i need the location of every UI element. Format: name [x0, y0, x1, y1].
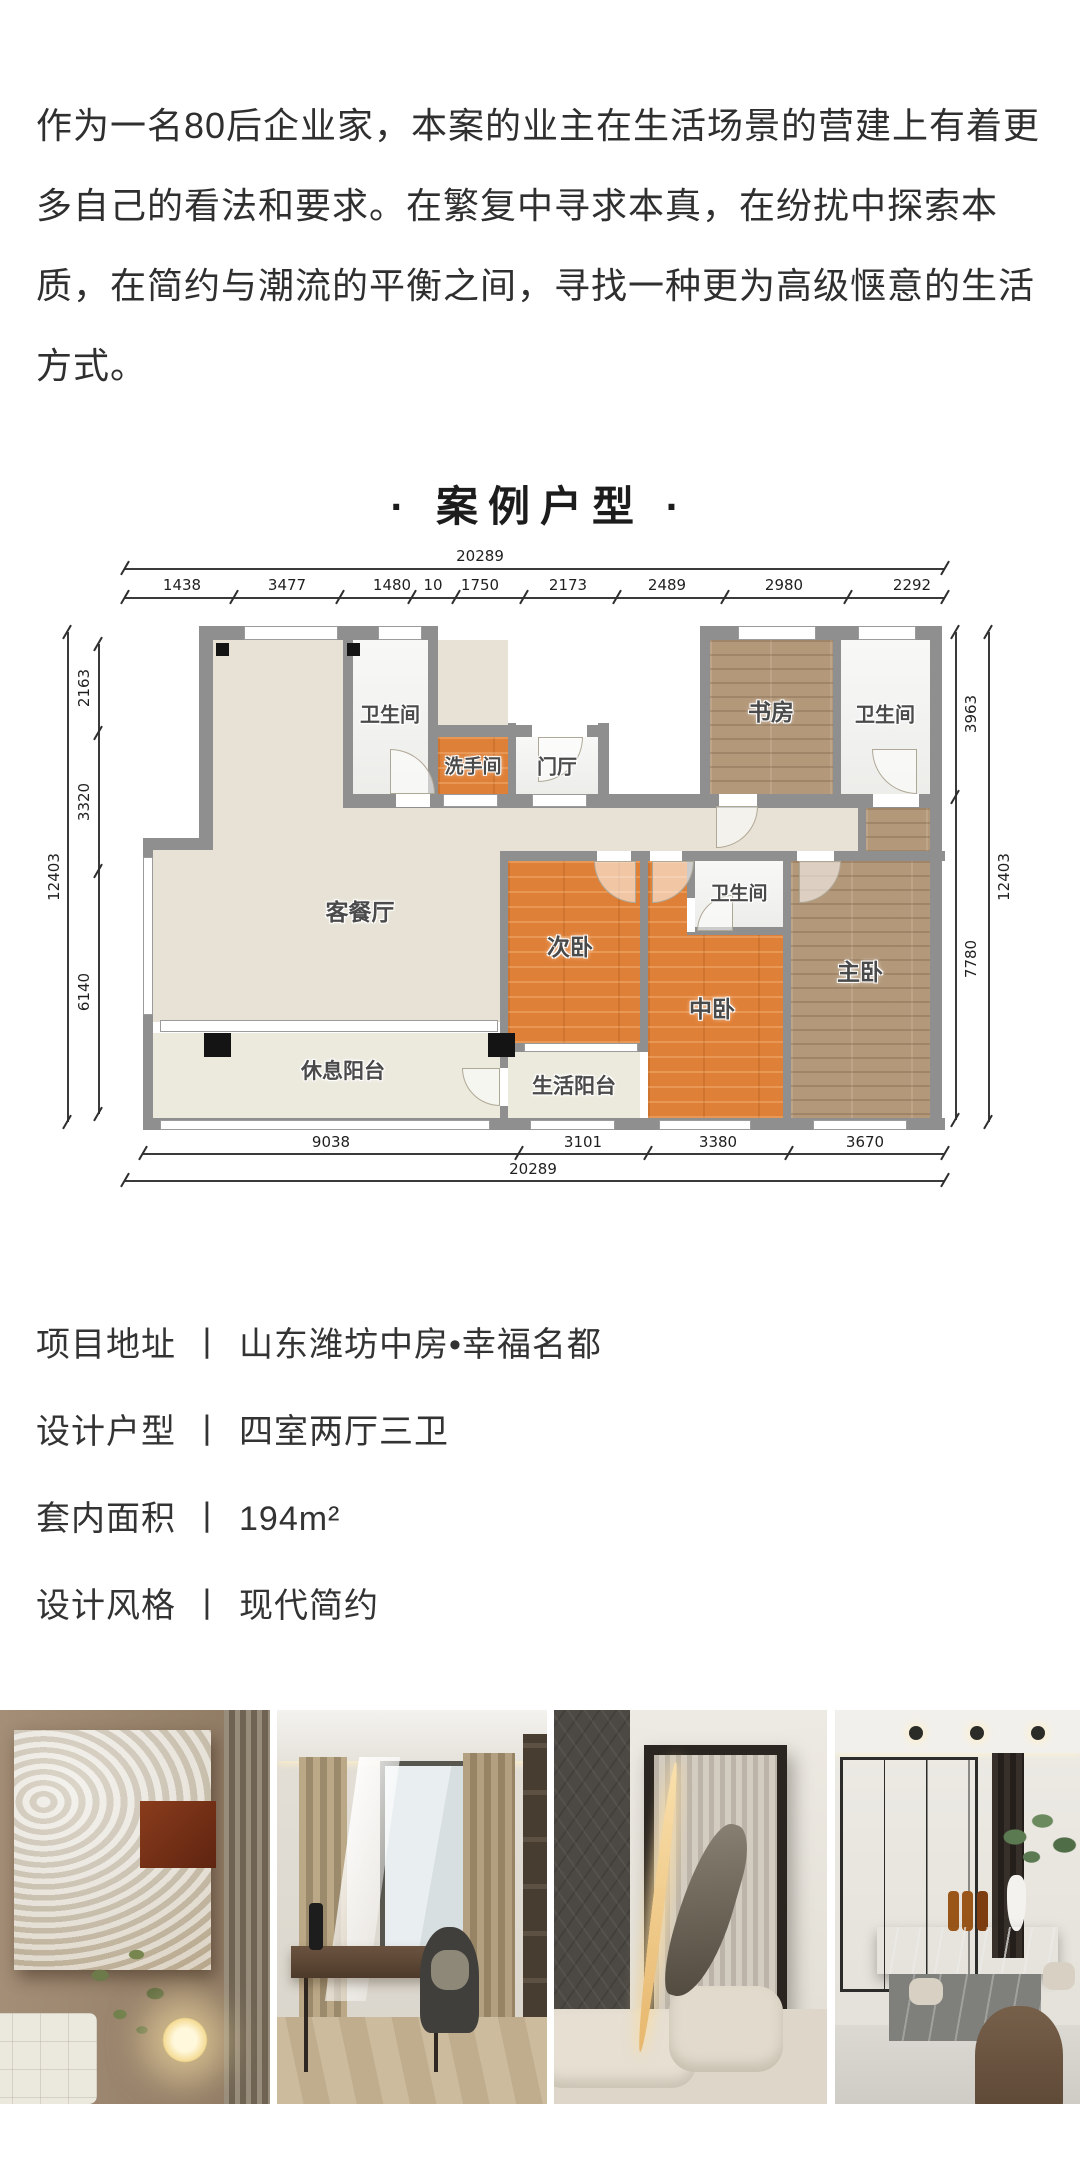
dimension-label: 2173 — [549, 576, 587, 594]
window — [738, 626, 816, 640]
info-separator: 丨 — [190, 1326, 225, 1364]
room-label: 卫生间 — [710, 879, 767, 906]
photo-living-room-artwork — [554, 1710, 827, 2104]
intro-paragraph: 作为一名80后企业家，本案的业主在生活场景的营建上有着更多自己的看法和要求。在繁… — [36, 86, 1046, 406]
dimension-label: 20289 — [509, 1160, 557, 1178]
dining-chair — [975, 2006, 1063, 2105]
structural-column — [488, 1033, 515, 1057]
room-master-bedroom-upper — [866, 808, 930, 857]
info-label: 项目地址 — [36, 1326, 176, 1364]
window — [160, 1120, 490, 1130]
dimension-label: 9038 — [312, 1133, 350, 1151]
door-opening — [873, 794, 919, 807]
spotlight — [1031, 1726, 1045, 1740]
window — [378, 626, 422, 640]
dimension-line — [143, 1153, 945, 1155]
info-value: 194m² — [239, 1500, 340, 1538]
dimension-label: 3320 — [75, 783, 93, 821]
floor-plan: 客餐厅卫生间洗手间门厅书房卫生间卫生间次卧中卧主卧生活阳台休息阳台2028914… — [60, 555, 1000, 1210]
dimension-label: 1480 — [373, 576, 411, 594]
marble-bar-counter — [877, 1927, 1058, 1974]
door-opening — [797, 851, 834, 861]
curtain — [224, 1710, 270, 2104]
desk-leg — [304, 1978, 308, 2073]
wall — [343, 794, 940, 808]
article-page: 作为一名80后企业家，本案的业主在生活场景的营建上有着更多自己的看法和要求。在繁… — [0, 0, 1080, 2168]
room-label: 主卧 — [837, 953, 883, 987]
room-label: 书房 — [748, 693, 794, 727]
window — [530, 1120, 615, 1130]
door-opening — [687, 898, 695, 932]
info-separator: 丨 — [190, 1413, 225, 1451]
bottle — [948, 1891, 959, 1930]
info-row-area: 套内面积丨194m² — [36, 1494, 602, 1544]
room-label: 卫生间 — [360, 699, 420, 728]
info-row-layout: 设计户型丨四室两厅三卫 — [36, 1407, 602, 1457]
project-info: 项目地址丨山东潍坊中房•幸福名都 设计户型丨四室两厅三卫 套内面积丨194m² … — [36, 1320, 602, 1668]
info-separator: 丨 — [190, 1500, 225, 1538]
room-label: 休息阳台 — [301, 1055, 385, 1085]
window — [143, 857, 153, 1015]
dimension-label: 6140 — [75, 973, 93, 1011]
wall — [858, 795, 866, 857]
info-separator: 丨 — [190, 1587, 225, 1625]
info-value: 四室两厅三卫 — [239, 1413, 449, 1451]
dimension-label: 3101 — [564, 1133, 602, 1151]
door-opening — [532, 725, 587, 737]
room-corridor — [508, 808, 858, 851]
photo-bedroom-artwork — [0, 1710, 270, 2104]
info-row-address: 项目地址丨山东潍坊中房•幸福名都 — [36, 1320, 602, 1370]
window — [813, 1120, 907, 1130]
room-label: 卫生间 — [855, 699, 915, 728]
window — [659, 1120, 751, 1130]
wall — [833, 626, 841, 808]
bottle — [962, 1891, 973, 1930]
door-opening — [396, 794, 430, 807]
room-label: 生活阳台 — [532, 1070, 616, 1100]
wall — [508, 723, 516, 806]
info-value: 现代简约 — [239, 1587, 379, 1625]
dimension-label: 2292 — [893, 576, 931, 594]
room-label: 客餐厅 — [326, 893, 395, 927]
section-title: · 案例户型 · — [0, 473, 1080, 534]
room-label: 中卧 — [689, 990, 735, 1024]
info-label: 设计户型 — [36, 1413, 176, 1451]
wall — [598, 723, 609, 808]
door-opening — [500, 1068, 508, 1106]
photo-gallery — [0, 1710, 1080, 2104]
bar-stool — [909, 1978, 943, 2006]
dimension-line — [125, 597, 945, 599]
structural-column — [347, 643, 360, 656]
spotlight — [970, 1726, 984, 1740]
window — [244, 626, 338, 640]
room-label: 门厅 — [537, 751, 577, 780]
structural-column — [216, 643, 229, 656]
info-row-style: 设计风格丨现代简约 — [36, 1581, 602, 1631]
dimension-label: 12403 — [45, 853, 63, 901]
wall — [199, 626, 213, 850]
window — [160, 1020, 498, 1032]
spotlight — [909, 1726, 923, 1740]
globe-lamp — [162, 2017, 208, 2063]
dimension-label: 1750 — [461, 576, 499, 594]
info-value: 山东潍坊中房•幸福名都 — [239, 1326, 602, 1364]
wall — [783, 851, 791, 1130]
bottle — [977, 1891, 988, 1930]
info-label: 设计风格 — [36, 1587, 176, 1625]
dimension-label: 20289 — [456, 547, 504, 565]
dimension-label: 3477 — [268, 576, 306, 594]
dimension-label: 2163 — [75, 669, 93, 707]
photo-study-room — [277, 1710, 547, 2104]
dimension-line — [67, 632, 69, 1122]
dimension-label: 2489 — [648, 576, 686, 594]
room-label: 洗手间 — [444, 752, 501, 779]
wall — [508, 851, 945, 861]
structural-column — [204, 1033, 231, 1057]
window — [532, 794, 587, 807]
dimension-line — [125, 568, 945, 570]
wall — [700, 626, 710, 808]
wall — [143, 838, 213, 850]
rust-square-accent — [140, 1801, 216, 1868]
bar-stool — [1043, 1962, 1075, 1990]
dimension-label: 3963 — [962, 695, 980, 733]
door-opening — [597, 851, 631, 861]
dimension-label: 12403 — [995, 853, 1013, 901]
door-opening — [650, 851, 682, 861]
plant — [982, 1805, 1080, 1885]
photo-dining-bar — [835, 1710, 1080, 2104]
window — [524, 1043, 638, 1052]
window — [858, 626, 916, 640]
dimension-line — [125, 1180, 945, 1182]
dimension-label: 3380 — [699, 1133, 737, 1151]
dimension-label: 10 — [423, 576, 442, 594]
chair-cushion — [431, 1950, 469, 1989]
wall — [930, 626, 942, 1130]
dimension-label: 7780 — [962, 940, 980, 978]
desk-lamp — [309, 1903, 323, 1950]
dimension-line — [988, 632, 990, 1122]
room-label: 次卧 — [547, 928, 593, 962]
dimension-label: 2980 — [765, 576, 803, 594]
dimension-label: 3670 — [846, 1133, 884, 1151]
room-living-bay — [153, 850, 213, 1022]
dimension-line — [955, 632, 957, 1120]
sofa-cushion — [669, 1986, 784, 2073]
dimension-label: 1438 — [163, 576, 201, 594]
info-label: 套内面积 — [36, 1500, 176, 1538]
wall — [640, 851, 648, 1051]
dimension-line — [98, 644, 100, 1114]
window — [443, 794, 498, 807]
wood-floor — [277, 2017, 547, 2104]
